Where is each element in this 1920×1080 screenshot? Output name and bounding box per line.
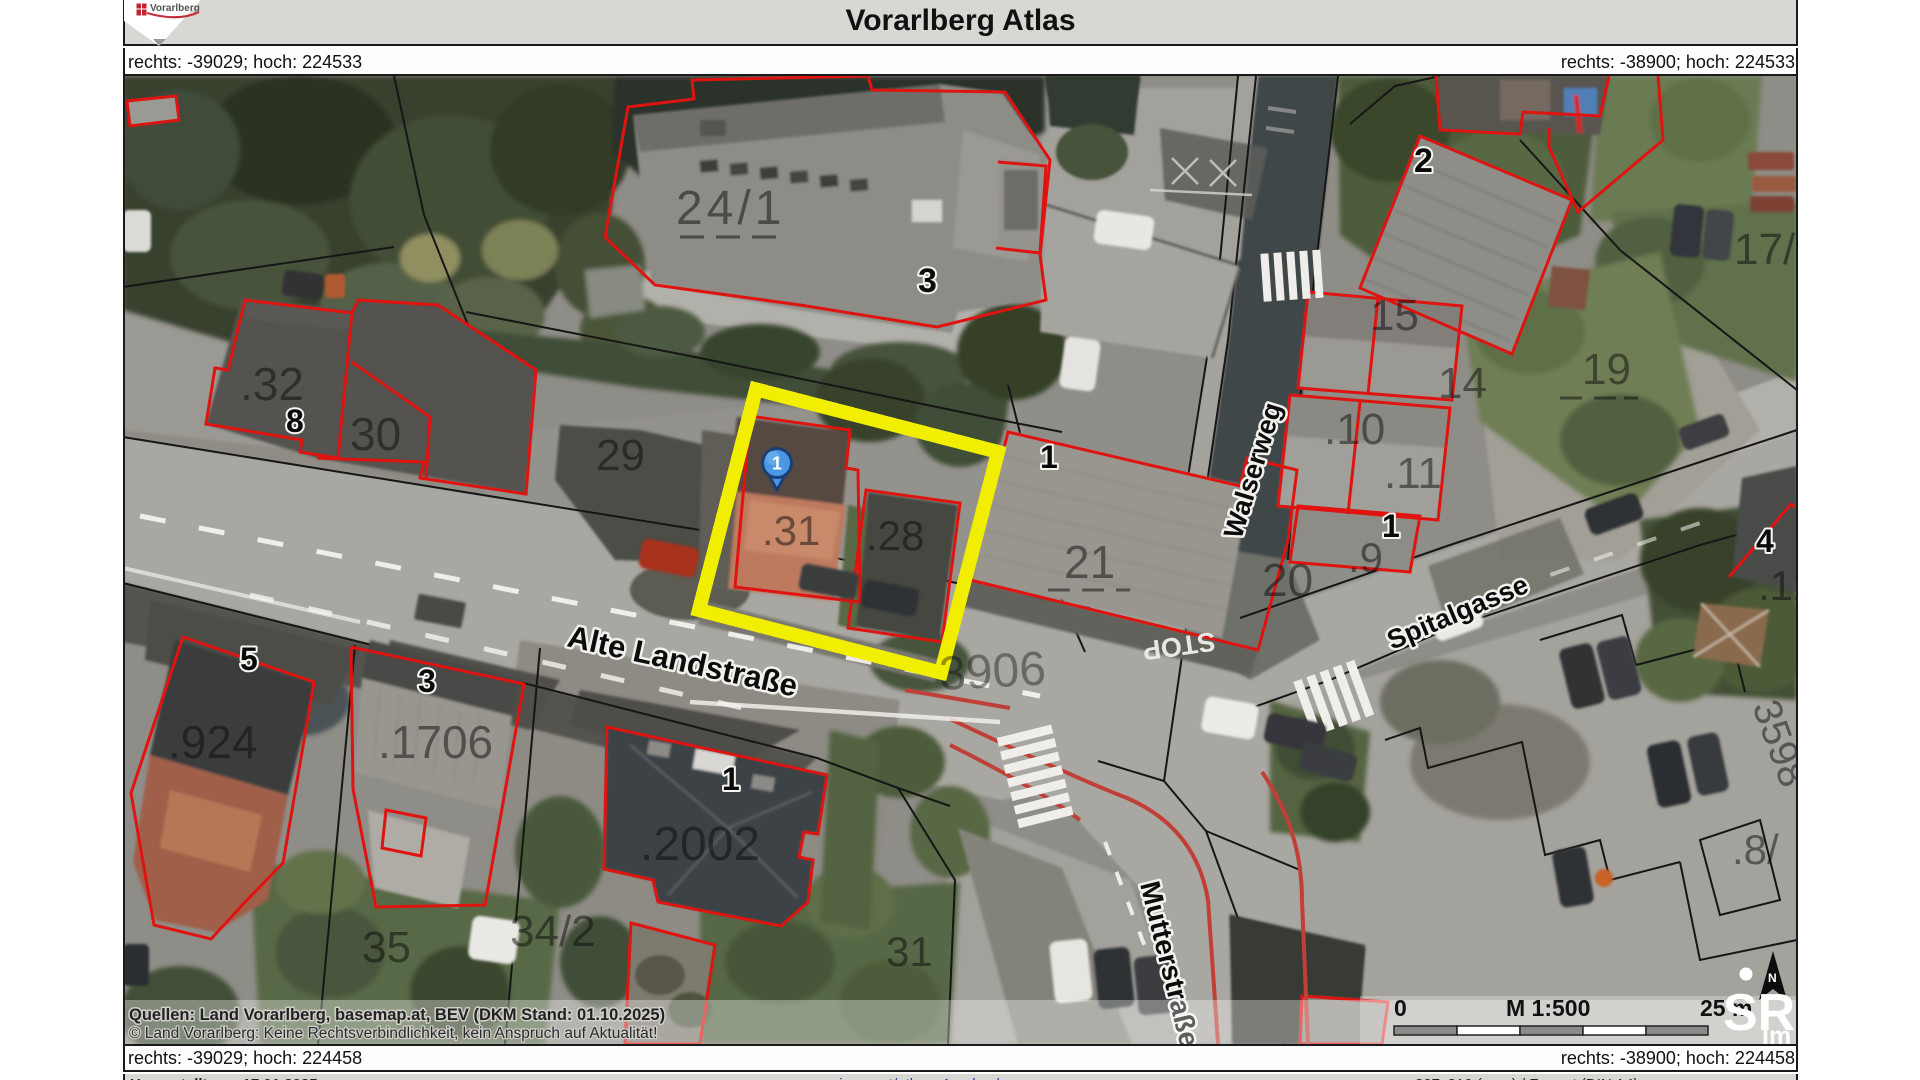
svg-text:.8/: .8/ <box>1732 826 1779 873</box>
svg-text:.12: .12 <box>1758 562 1798 609</box>
svg-text:3: 3 <box>918 262 937 300</box>
svg-text:34/2: 34/2 <box>510 907 596 956</box>
svg-text:2: 2 <box>1414 142 1433 180</box>
svg-text:.11: .11 <box>1384 449 1442 498</box>
svg-text:.9: .9 <box>1348 534 1383 581</box>
svg-text:4: 4 <box>1756 523 1774 559</box>
svg-text:30: 30 <box>350 408 401 460</box>
svg-text:29: 29 <box>596 431 645 480</box>
svg-text:.2002: .2002 <box>640 818 760 871</box>
svg-text:.28: .28 <box>866 512 924 559</box>
svg-text:8: 8 <box>286 403 304 439</box>
svg-text:.1706: .1706 <box>378 716 493 768</box>
svg-text:Quellen: Land Vorarlberg, base: Quellen: Land Vorarlberg, basemap.at, BE… <box>129 1006 665 1024</box>
svg-text:.924: .924 <box>168 716 258 768</box>
svg-text:21: 21 <box>1064 536 1115 588</box>
svg-text:M 1:500: M 1:500 <box>1506 995 1590 1021</box>
svg-text:3906: 3906 <box>938 642 1047 701</box>
svg-text:24/1: 24/1 <box>676 182 785 235</box>
svg-text:1: 1 <box>772 454 782 474</box>
svg-text:Im: Im <box>1762 1022 1791 1044</box>
svg-text:.31: .31 <box>762 507 820 554</box>
svg-text:5: 5 <box>240 641 258 677</box>
svg-text:© Land Vorarlberg: Keine Recht: © Land Vorarlberg: Keine Rechtsverbindli… <box>129 1025 657 1042</box>
svg-text:14: 14 <box>1438 359 1487 408</box>
svg-text:1: 1 <box>1040 439 1058 475</box>
svg-text:15: 15 <box>1370 291 1419 340</box>
svg-text:1: 1 <box>722 761 740 797</box>
svg-text:1: 1 <box>1382 508 1400 544</box>
svg-text:N: N <box>1768 971 1777 985</box>
svg-text:.10: .10 <box>1324 405 1385 454</box>
svg-text:0: 0 <box>1394 995 1407 1021</box>
svg-text:19: 19 <box>1582 345 1631 394</box>
svg-text:17/2: 17/2 <box>1734 225 1798 274</box>
svg-text:31: 31 <box>886 928 933 975</box>
svg-text:3: 3 <box>418 663 436 699</box>
svg-text:20: 20 <box>1262 554 1313 606</box>
svg-text:35: 35 <box>362 923 411 972</box>
